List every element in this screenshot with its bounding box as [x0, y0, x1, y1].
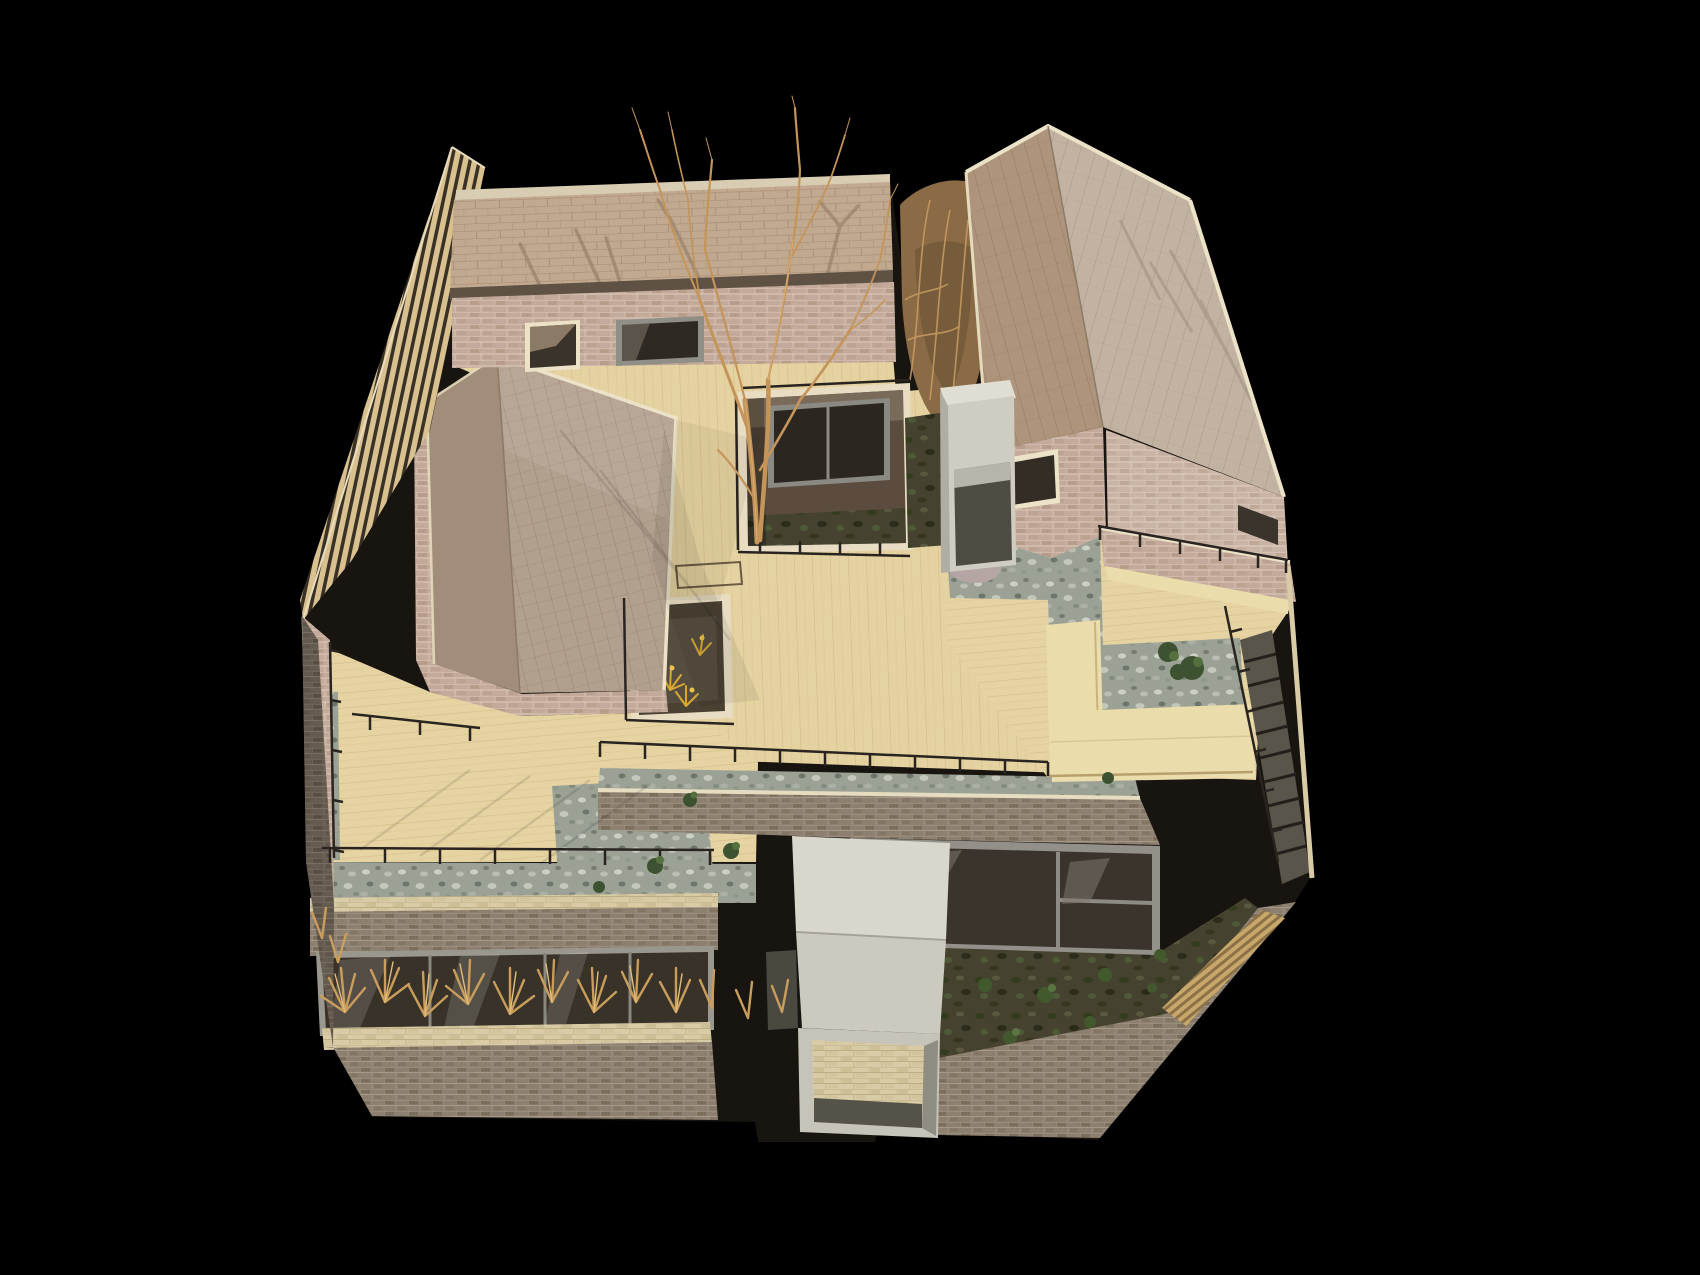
model-photo-svg: Architectural scale model photograph [0, 0, 1700, 1275]
entrance-canopy-lower [796, 932, 946, 1034]
gabled-house-left [414, 356, 676, 716]
concrete-stair-box [940, 380, 1016, 573]
photo-stage: Architectural scale model photograph [0, 0, 1700, 1275]
gabled-house-top-left [450, 174, 896, 372]
front-lower-wall [324, 1042, 718, 1120]
door-recess [766, 950, 798, 1030]
house-a-window-small [525, 320, 580, 372]
house-a-window-wide [616, 316, 704, 366]
entrance-canopy-upper [792, 836, 950, 940]
architectural-model-photograph: Architectural scale model photograph [0, 0, 1700, 1275]
entry-box-jamb [922, 1040, 938, 1136]
